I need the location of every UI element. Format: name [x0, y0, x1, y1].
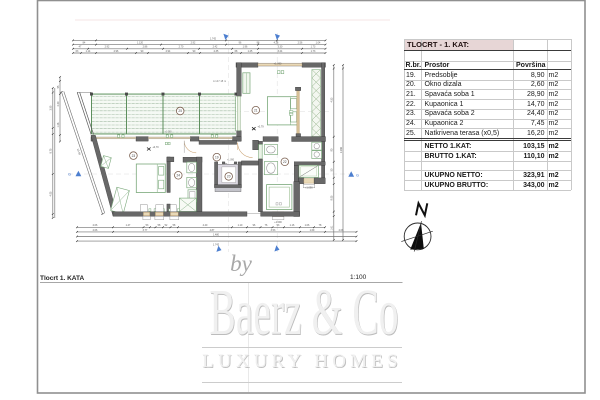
svg-text:76: 76	[265, 224, 268, 227]
svg-text:98: 98	[257, 42, 260, 45]
svg-text:+1.080: +1.080	[164, 132, 172, 134]
svg-text:1.742: 1.742	[210, 37, 217, 40]
svg-text:2.266: 2.266	[340, 146, 343, 153]
svg-text:1.69: 1.69	[310, 229, 315, 232]
svg-text:53: 53	[277, 224, 280, 227]
svg-text:2.92: 2.92	[191, 42, 196, 45]
svg-text:58: 58	[158, 224, 161, 227]
svg-text:10.38: 10.38	[76, 148, 82, 156]
svg-text:1.14: 1.14	[86, 50, 91, 53]
svg-text:1.61: 1.61	[331, 225, 334, 230]
svg-text:4.87: 4.87	[210, 229, 215, 232]
svg-text:2.06: 2.06	[93, 224, 98, 227]
svg-text:22: 22	[283, 160, 287, 164]
svg-text:50: 50	[331, 168, 334, 171]
svg-text:8.75: 8.75	[50, 148, 53, 153]
svg-text:53: 53	[146, 224, 149, 227]
svg-text:2.96: 2.96	[114, 50, 119, 53]
svg-text:55: 55	[57, 85, 60, 88]
svg-text:+1.090: +1.090	[227, 159, 235, 161]
svg-text:2.86: 2.86	[143, 46, 148, 49]
svg-text:2.70: 2.70	[179, 46, 184, 49]
svg-text:96: 96	[253, 224, 256, 227]
svg-text:3.55: 3.55	[50, 105, 53, 110]
svg-text:96: 96	[239, 42, 242, 45]
svg-text:3.77: 3.77	[143, 229, 148, 232]
svg-text:90: 90	[331, 148, 334, 151]
svg-text:3.30: 3.30	[278, 46, 283, 49]
svg-text:3.24: 3.24	[278, 50, 283, 53]
svg-text:78: 78	[319, 224, 322, 227]
svg-text:G: G	[68, 173, 71, 177]
svg-text:84: 84	[83, 42, 86, 45]
svg-text:2.42: 2.42	[213, 46, 218, 49]
svg-text:4.40: 4.40	[203, 224, 208, 227]
svg-text:1.04: 1.04	[316, 42, 321, 45]
svg-text:58: 58	[173, 224, 176, 227]
svg-text:1.120: 1.120	[137, 42, 144, 45]
svg-text:23: 23	[132, 154, 136, 158]
svg-text:1.26: 1.26	[57, 122, 60, 127]
svg-text:G: G	[356, 174, 359, 178]
svg-text:+0,70: +0,70	[152, 146, 159, 149]
svg-text:1.73: 1.73	[311, 46, 316, 49]
svg-text:2.92: 2.92	[105, 46, 110, 49]
svg-text:19: 19	[215, 155, 219, 159]
svg-text:+1.090: +1.090	[305, 187, 313, 190]
svg-text:24: 24	[177, 174, 181, 178]
svg-text:25: 25	[178, 109, 182, 113]
svg-text:1.10: 1.10	[238, 224, 243, 227]
svg-text:68: 68	[235, 50, 238, 53]
svg-text:1.480: 1.480	[213, 233, 220, 236]
svg-text:63: 63	[76, 50, 79, 53]
svg-text:1.73: 1.73	[311, 50, 316, 53]
svg-text:1.25: 1.25	[248, 50, 253, 53]
svg-text:4.53: 4.53	[331, 97, 334, 102]
svg-text:4.05: 4.05	[50, 191, 53, 196]
svg-text:90: 90	[141, 50, 144, 53]
svg-text:2.56: 2.56	[298, 42, 303, 45]
svg-text:+1.090: +1.090	[274, 62, 282, 65]
svg-text:21: 21	[254, 108, 258, 112]
svg-text:1.47: 1.47	[126, 224, 131, 227]
svg-text:2.06: 2.06	[93, 229, 98, 232]
svg-text:+0,79: +0,79	[257, 126, 264, 129]
svg-text:20: 20	[227, 175, 231, 179]
svg-text:52: 52	[165, 224, 168, 227]
svg-text:2.94: 2.94	[166, 50, 171, 53]
svg-text:A 147.18 m: A 147.18 m	[213, 79, 226, 83]
svg-text:1.96: 1.96	[243, 46, 248, 49]
svg-text:47: 47	[79, 46, 82, 49]
svg-text:90: 90	[193, 50, 196, 53]
svg-text:4.26: 4.26	[274, 42, 279, 45]
svg-text:1.16: 1.16	[290, 224, 295, 227]
svg-text:3.53: 3.53	[271, 229, 276, 232]
svg-text:1.06: 1.06	[305, 224, 310, 227]
svg-text:9.05: 9.05	[331, 195, 334, 200]
svg-text:2.35: 2.35	[214, 50, 219, 53]
svg-text:2.30: 2.30	[57, 101, 60, 106]
